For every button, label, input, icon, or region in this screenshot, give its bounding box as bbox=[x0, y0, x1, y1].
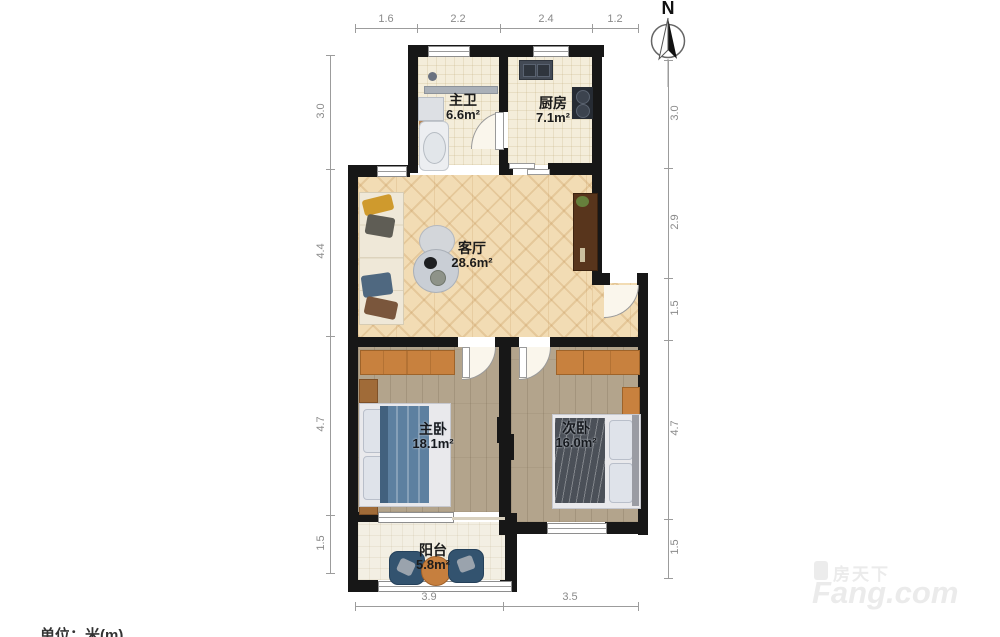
room-name: 客厅 bbox=[437, 241, 507, 256]
room-name: 厨房 bbox=[518, 96, 588, 111]
room-area: 5.8m² bbox=[398, 558, 468, 572]
towel-hook bbox=[428, 72, 437, 81]
dim-left-3: 4.7 bbox=[315, 411, 327, 437]
label-second-bedroom: 次卧 16.0m² bbox=[541, 421, 611, 451]
living-west-window bbox=[377, 166, 407, 177]
kitchen-window bbox=[533, 46, 569, 57]
dim-bottom-1: 3.9 bbox=[416, 591, 442, 603]
floorplan-canvas: 主卫 6.6m² 厨房 7.1m² 客厅 28.6m² 主卧 18.1m² 次卧… bbox=[0, 0, 1000, 637]
dim-left-4: 1.5 bbox=[315, 530, 327, 556]
wall-left-outer bbox=[348, 165, 358, 590]
wall-secondbed-bottom-a bbox=[511, 522, 547, 534]
room-name: 次卧 bbox=[541, 421, 611, 436]
table-bowl bbox=[424, 257, 437, 269]
second-bed-pillow-b bbox=[609, 463, 633, 503]
tick bbox=[326, 573, 335, 574]
master-bed bbox=[359, 403, 451, 507]
tick bbox=[500, 24, 501, 33]
kitchen-sink bbox=[519, 60, 553, 80]
label-master-bath: 主卫 6.6m² bbox=[428, 93, 498, 123]
dim-right-4: 4.7 bbox=[669, 415, 681, 441]
tick bbox=[592, 24, 593, 33]
tick bbox=[664, 340, 673, 341]
room-area: 16.0m² bbox=[541, 436, 611, 450]
wall-topblock-left bbox=[408, 45, 418, 173]
master-bed-runner bbox=[380, 406, 388, 503]
tick bbox=[355, 602, 356, 611]
master-nightstand-top bbox=[359, 379, 378, 403]
dim-top-2: 2.2 bbox=[445, 13, 471, 25]
tick bbox=[664, 278, 673, 279]
tick bbox=[638, 602, 639, 611]
sink-basin-left bbox=[523, 64, 536, 77]
master-wardrobe bbox=[360, 350, 455, 375]
balcony-door-slider bbox=[378, 512, 454, 523]
room-name: 阳台 bbox=[398, 543, 468, 558]
second-door-leaf bbox=[519, 347, 527, 378]
dim-left-1: 3.0 bbox=[315, 98, 327, 124]
wall-bedrooms-top-c bbox=[550, 337, 648, 347]
table-plant bbox=[430, 270, 446, 286]
tick bbox=[664, 519, 673, 520]
secondbed-window bbox=[547, 523, 607, 534]
second-wardrobe bbox=[556, 350, 640, 375]
units-note: 单位：米(m) bbox=[40, 624, 123, 637]
tv-remote bbox=[580, 248, 585, 262]
room-name: 主卫 bbox=[428, 93, 498, 108]
tick bbox=[503, 602, 504, 611]
dim-line-top bbox=[355, 28, 638, 29]
tick bbox=[664, 578, 673, 579]
wall-bath-kitchen-divider-a bbox=[499, 48, 508, 112]
dim-right-1: 3.0 bbox=[669, 100, 681, 126]
room-area: 7.1m² bbox=[518, 111, 588, 125]
divider-door-mark-a bbox=[497, 417, 501, 443]
dim-top-3: 2.4 bbox=[533, 13, 559, 25]
dim-right-2: 2.9 bbox=[669, 209, 681, 235]
wall-living-top-right bbox=[548, 163, 594, 175]
tick bbox=[326, 515, 335, 516]
dim-bottom-2: 3.5 bbox=[557, 591, 583, 603]
dim-top-4: 1.2 bbox=[602, 13, 628, 25]
room-area: 6.6m² bbox=[428, 108, 498, 122]
divider-door-mark-b bbox=[510, 434, 514, 460]
tv-plant bbox=[576, 196, 589, 207]
dim-right-3: 1.5 bbox=[669, 295, 681, 321]
fang-watermark: 房天下 Fang.com bbox=[812, 555, 997, 625]
balcony-threshold bbox=[452, 517, 505, 520]
second-bed-headboard bbox=[632, 415, 639, 506]
sofa-pillow-blue bbox=[361, 272, 394, 298]
room-area: 18.1m² bbox=[398, 437, 468, 451]
room-area: 28.6m² bbox=[437, 256, 507, 270]
tick bbox=[417, 24, 418, 33]
north-compass-icon bbox=[648, 13, 688, 87]
dim-line-left bbox=[330, 55, 331, 573]
label-living-room: 客厅 28.6m² bbox=[437, 241, 507, 271]
wall-entry-top-a bbox=[602, 273, 610, 285]
tick bbox=[664, 168, 673, 169]
sink-basin-right bbox=[537, 64, 550, 77]
master-door-leaf bbox=[462, 347, 470, 378]
label-kitchen: 厨房 7.1m² bbox=[518, 96, 588, 126]
tick bbox=[638, 24, 639, 33]
wall-bedrooms-top-a bbox=[348, 337, 458, 347]
tick bbox=[326, 169, 335, 170]
tick bbox=[355, 24, 356, 33]
room-name: 主卧 bbox=[398, 422, 468, 437]
dim-right-5: 1.5 bbox=[669, 534, 681, 560]
kitchen-slider-leaf-b bbox=[527, 169, 550, 175]
label-master-bedroom: 主卧 18.1m² bbox=[398, 422, 468, 452]
label-balcony: 阳台 5.8m² bbox=[398, 543, 468, 573]
bathtub-basin bbox=[423, 132, 446, 164]
tick bbox=[326, 336, 335, 337]
dim-top-1: 1.6 bbox=[373, 13, 399, 25]
dim-left-2: 4.4 bbox=[315, 238, 327, 264]
tick bbox=[326, 55, 335, 56]
fang-brand-en: Fang.com bbox=[812, 575, 958, 611]
bath-window bbox=[428, 46, 470, 57]
wall-balcony-bottom-a bbox=[348, 580, 378, 592]
dim-line-bottom bbox=[355, 606, 638, 607]
wall-bedrooms-top-b bbox=[495, 337, 519, 347]
second-bed-pillow-a bbox=[609, 420, 633, 460]
wall-secondbed-bottom-b bbox=[605, 522, 648, 534]
